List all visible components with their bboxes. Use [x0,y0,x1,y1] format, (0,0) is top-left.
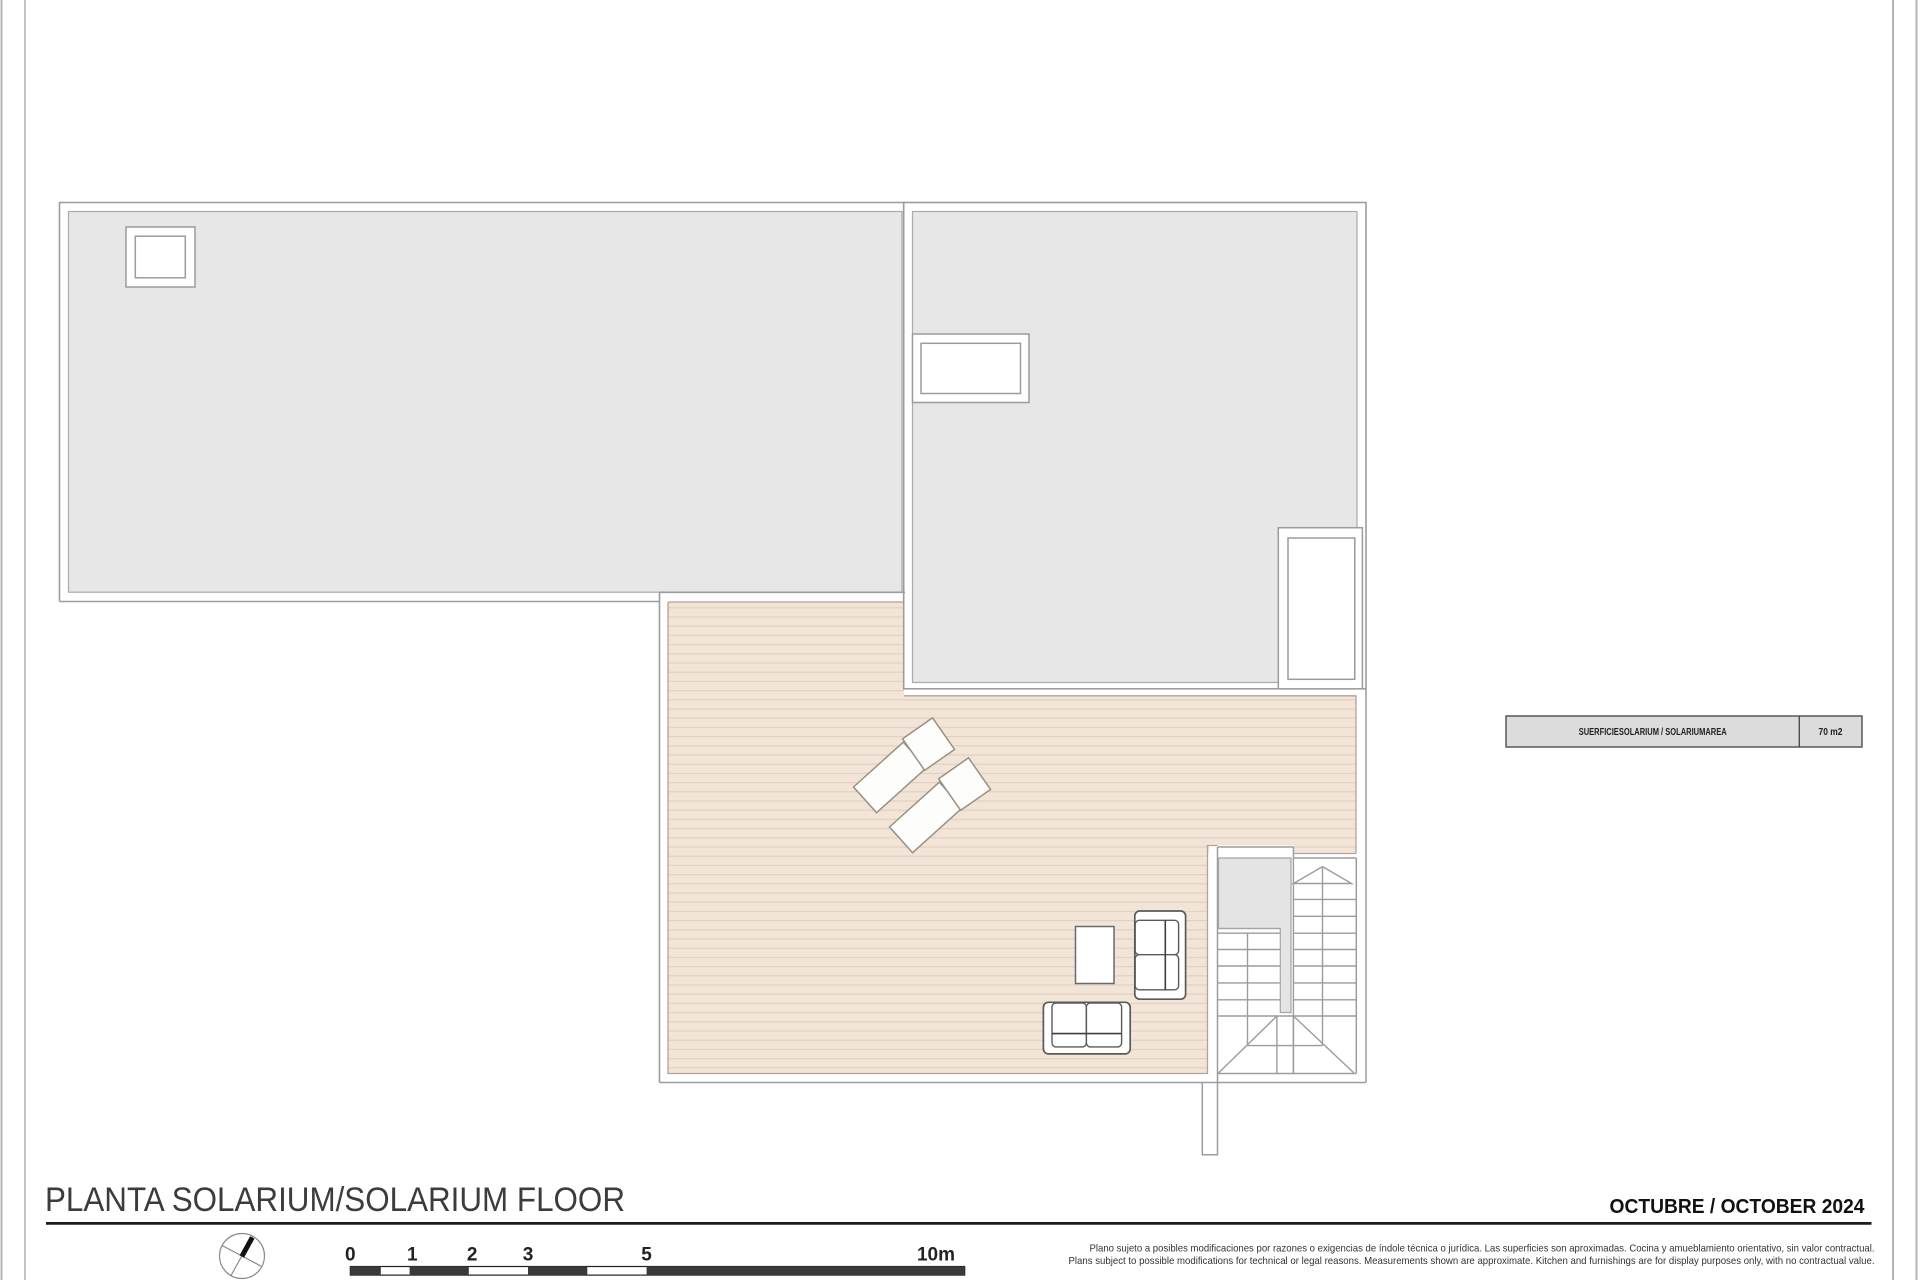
svg-text:3: 3 [523,1245,534,1266]
svg-text:2: 2 [467,1245,478,1266]
svg-text:10m: 10m [917,1245,955,1266]
svg-text:Plans subject to possible modi: Plans subject to possible modifications … [1069,1256,1875,1267]
svg-text:PLANTA SOLARIUM/SOLARIUM FLOOR: PLANTA SOLARIUM/SOLARIUM FLOOR [45,1181,625,1219]
svg-text:OCTUBRE / OCTOBER 2024: OCTUBRE / OCTOBER 2024 [1610,1196,1866,1218]
svg-text:SUERFICIESOLARIUM / SOLARIUMAR: SUERFICIESOLARIUM / SOLARIUMAREA [1579,727,1727,738]
svg-text:1: 1 [407,1245,418,1266]
svg-text:0: 0 [345,1245,356,1266]
svg-text:5: 5 [641,1245,652,1266]
svg-text:70 m2: 70 m2 [1819,727,1843,738]
svg-text:Plano sujeto a posibles modifi: Plano sujeto a posibles modificaciones p… [1090,1244,1875,1255]
